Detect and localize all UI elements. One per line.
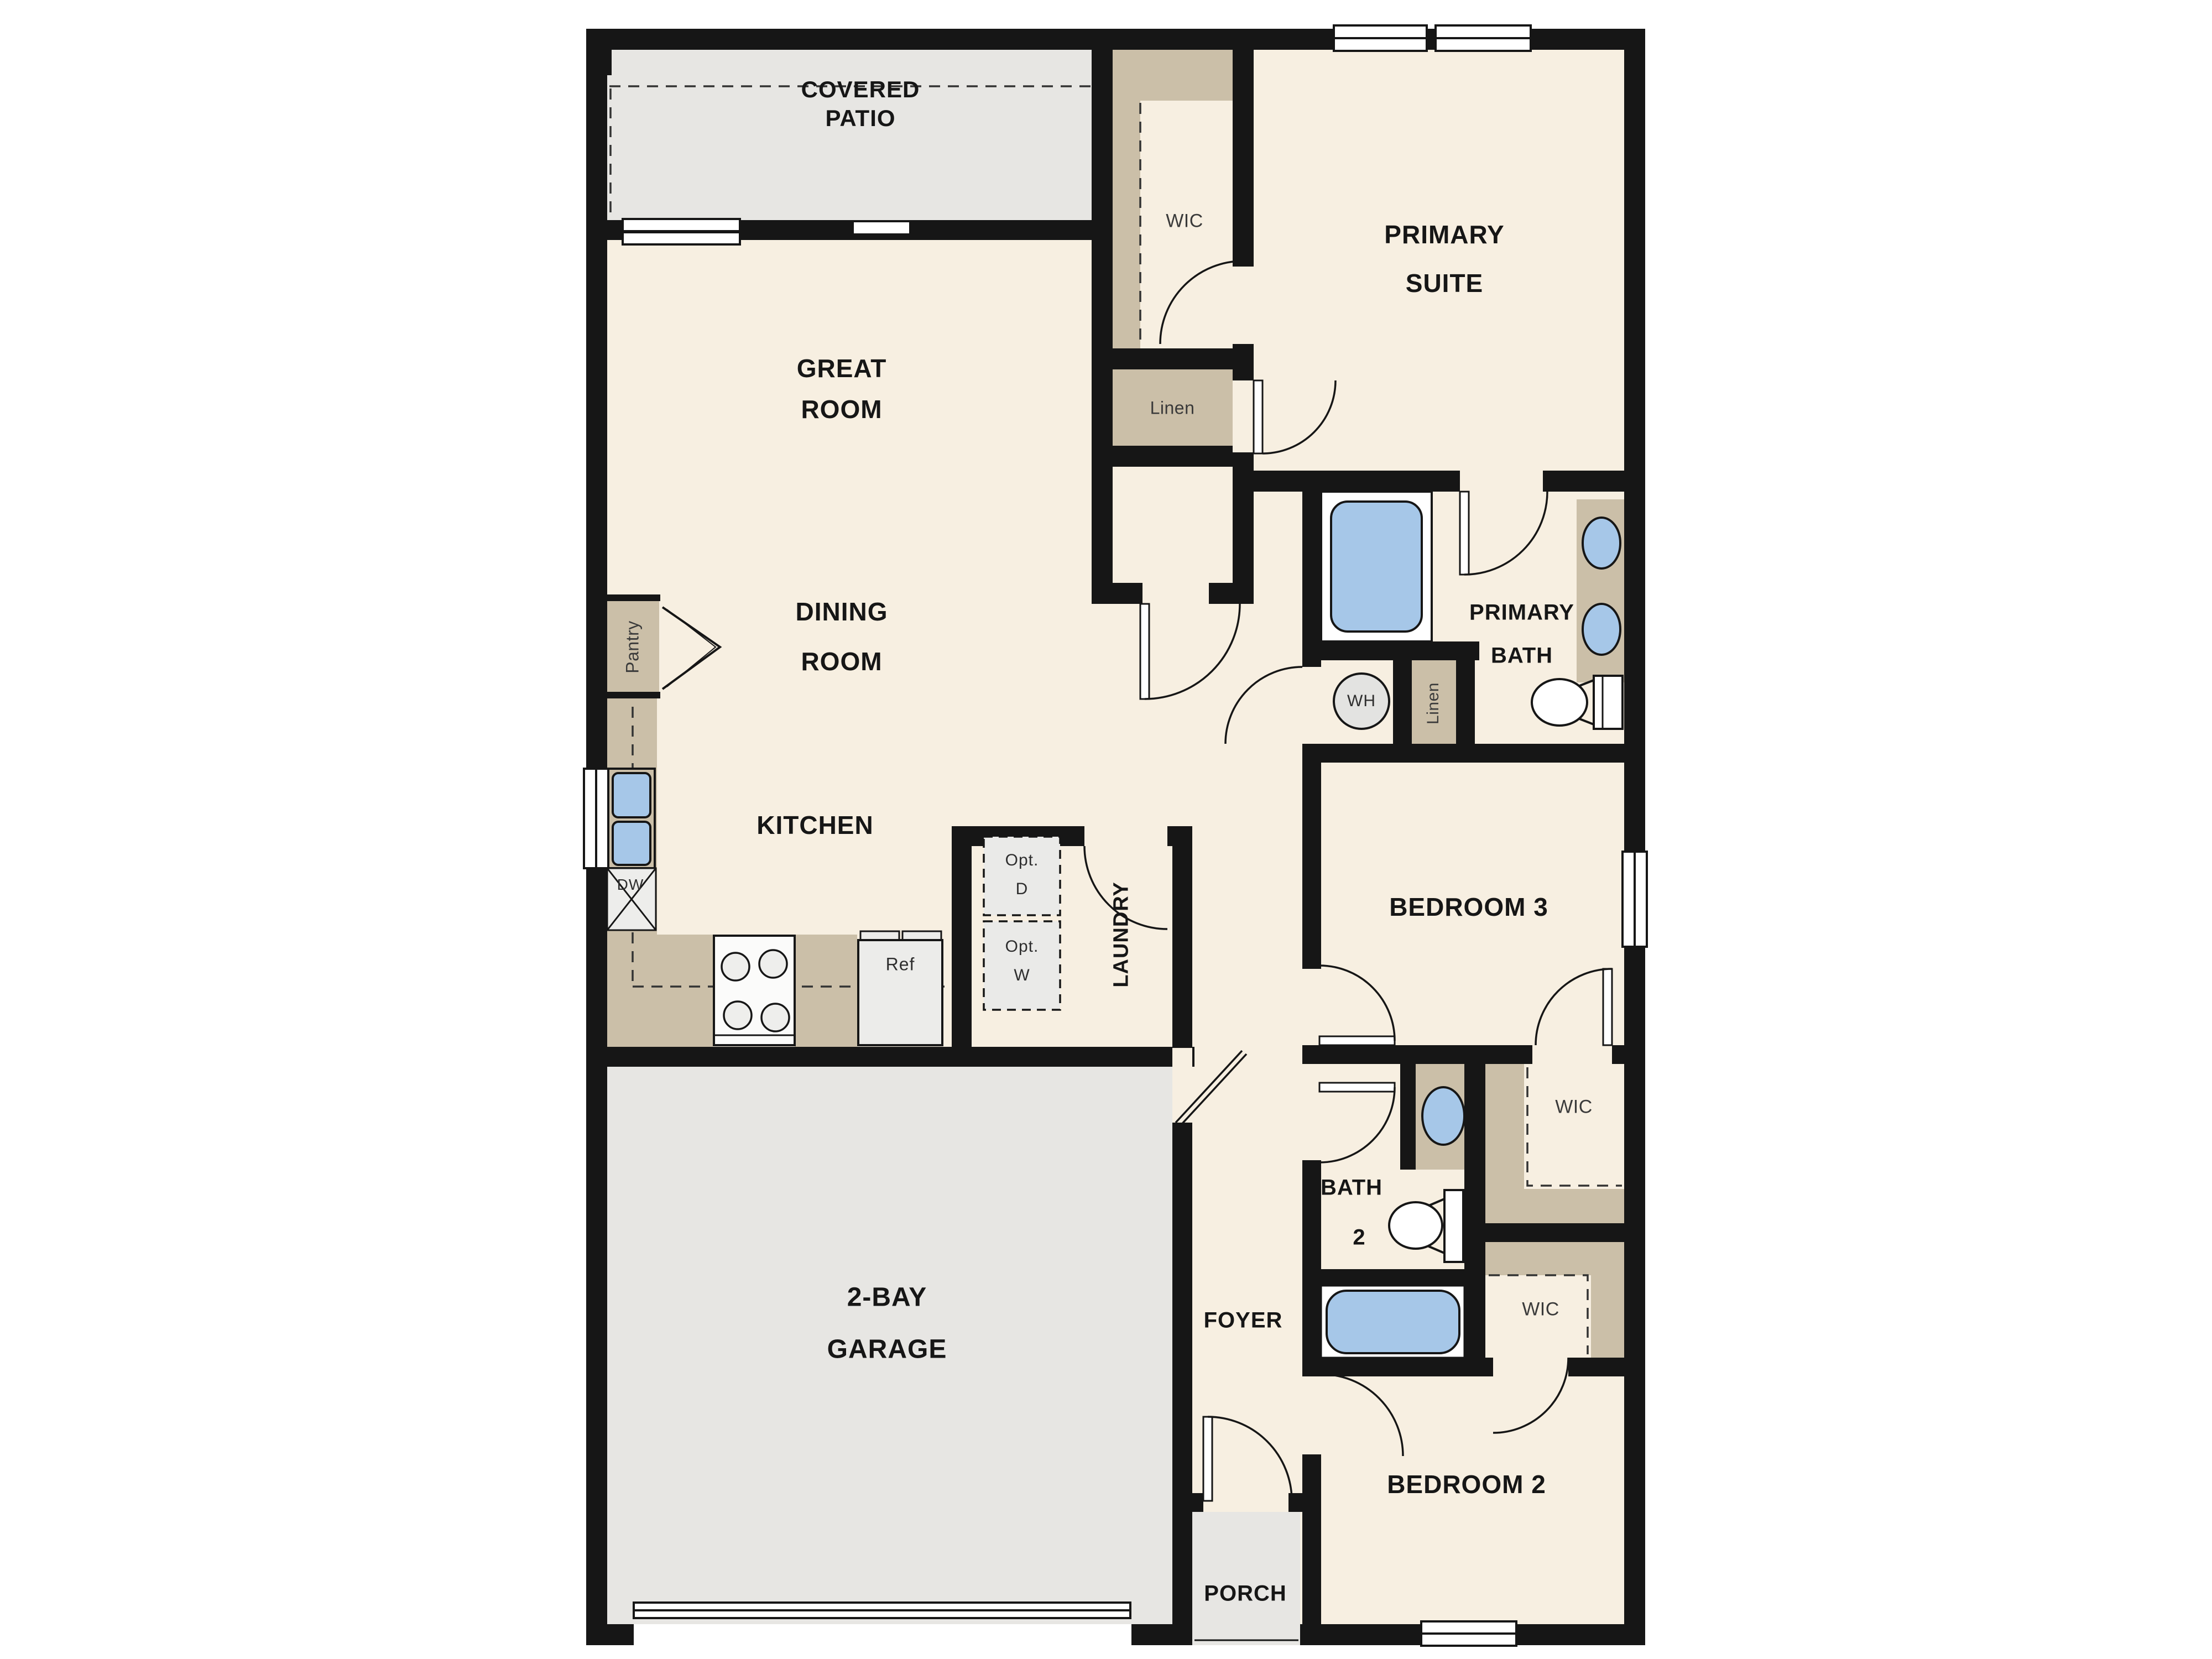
label-linen-hall: Linen	[1150, 398, 1195, 419]
label-primary-bath-2: BATH	[1491, 644, 1553, 669]
label-garage-2: GARAGE	[827, 1334, 947, 1365]
wic-bed2-shelf-top	[1485, 1242, 1626, 1275]
label-kitchen: KITCHEN	[757, 810, 873, 840]
label-bedroom2: BEDROOM 2	[1387, 1469, 1546, 1499]
label-porch: PORCH	[1204, 1582, 1286, 1606]
wic-primary-shelf-left	[1113, 101, 1140, 348]
kitchen-counter-left	[607, 693, 657, 935]
label-garage-1: 2-BAY	[847, 1282, 927, 1313]
wic-bed3-shelf-bottom	[1485, 1189, 1626, 1223]
wic-primary-shelf-top	[1113, 50, 1233, 101]
label-pantry: Pantry	[623, 620, 643, 673]
label-foyer: FOYER	[1204, 1308, 1283, 1333]
label-opt-dryer-2: D	[1016, 880, 1029, 899]
wic-bed2-shelf-right	[1591, 1275, 1626, 1358]
label-opt-washer-2: W	[1014, 966, 1030, 985]
room-porch	[1192, 1512, 1300, 1645]
kitchen-counter-bottom-b	[795, 935, 857, 1047]
label-opt-washer-1: Opt.	[1005, 937, 1039, 956]
primary-bath-vanity	[1577, 499, 1626, 682]
label-great-room-2: ROOM	[801, 394, 882, 424]
label-wic-bedroom3: WIC	[1555, 1097, 1593, 1118]
floor-plan-canvas: COVERED PATIO GREAT ROOM DINING ROOM KIT…	[0, 0, 2212, 1659]
label-primary-suite-1: PRIMARY	[1384, 220, 1504, 249]
label-primary-suite-2: SUITE	[1406, 268, 1483, 298]
label-wic-primary: WIC	[1166, 211, 1203, 232]
label-primary-bath-1: PRIMARY	[1469, 601, 1574, 625]
label-dishwasher: DW	[617, 876, 644, 894]
label-water-heater: WH	[1347, 692, 1376, 711]
bath2-sink-counter	[1416, 1064, 1471, 1170]
label-covered-patio-1: COVERED	[801, 76, 920, 103]
label-bath2-1: BATH	[1321, 1176, 1383, 1201]
label-opt-dryer-1: Opt.	[1005, 851, 1039, 870]
label-bedroom3: BEDROOM 3	[1389, 892, 1548, 922]
room-covered-patio	[597, 50, 1095, 221]
label-laundry: LAUNDRY	[1110, 881, 1134, 987]
label-wic-bedroom2: WIC	[1522, 1299, 1559, 1321]
label-linen-bath: Linen	[1424, 682, 1443, 724]
kitchen-counter-bottom-a	[607, 935, 713, 1047]
label-covered-patio-2: PATIO	[825, 105, 895, 132]
label-dining-room-2: ROOM	[801, 646, 882, 676]
label-bath2-2: 2	[1353, 1225, 1365, 1250]
label-refrigerator: Ref	[886, 954, 915, 975]
label-dining-room-1: DINING	[796, 597, 888, 627]
label-great-room-1: GREAT	[797, 353, 887, 383]
